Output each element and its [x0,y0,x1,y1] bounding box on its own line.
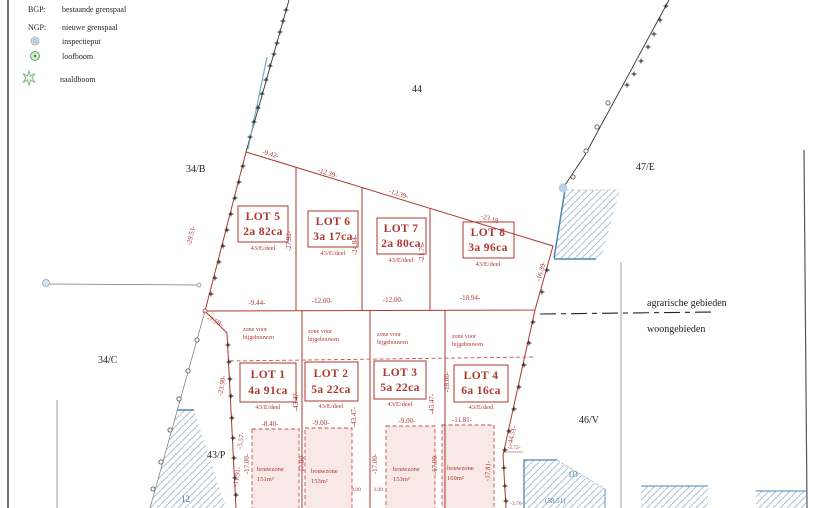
parcel-area-note: (58.51) [545,497,566,505]
zone-label: bijgebouwen [377,340,408,346]
dim-depth: -17.00- [371,453,379,474]
grenspaal-circle [197,283,201,287]
zone-label: bijgebouwen [243,335,274,341]
dim-mid-3: -18.94- [460,294,481,302]
bouwzone-label: bouwzone [311,468,338,475]
dim-bz-3: -11.81- [452,416,473,424]
cadastral-site-plan: BGP: bestaande grenspaal NGP: nieuwe gre… [0,0,836,508]
parcel-47e: 47/E [636,162,655,173]
lot4-area: 6a 16ca [461,385,501,397]
dim-gap-0: 3.00 [351,487,361,493]
lot7-area: 2a 80ca [381,238,421,250]
site-plan-svg: BGP: bestaande grenspaal NGP: nieuwe gre… [0,0,836,508]
bouwzone-area: 153m² [393,476,410,483]
legend-loofboom-label: loofboom [62,52,94,61]
parcel-44: 44 [412,84,422,95]
legend-inspectieput-label: inspectieput [62,37,101,46]
bouwzone-label: bouwzone [393,466,420,473]
lot4-name: LOT 4 [464,370,499,382]
inspectieput-symbol [43,280,50,287]
lot6-ref: 43/E/deel [321,250,346,257]
bouwzone-area: 153m² [311,478,328,485]
loofboom-icon-center [34,55,36,57]
bouwzone-area: 151m² [257,476,274,483]
lot2-area: 5a 22ca [311,384,351,396]
lot5-name: LOT 5 [246,211,281,223]
dim-bz-2: -9.00- [399,417,417,425]
parcel-1d: 1D [568,470,578,479]
lot3-name: LOT 3 [383,367,418,379]
dim-depth: -17.00- [431,453,439,474]
dim-lower-div-2: -43.47- [428,393,436,414]
dim-gap-1: 3.00 [373,487,383,493]
dim-lower-div-1: -43.47- [350,406,358,427]
dim-depth: -17.00- [298,453,306,474]
bouwzone-label: bouwzone [447,465,474,472]
lot4-ref: 43/E/deel [469,404,494,411]
dim-depth: -17.00- [243,453,251,474]
hatch-area-corner [756,491,806,508]
zoning-above-label: agrarische gebieden [647,298,727,309]
bouwzone-label: bouwzone [257,466,284,473]
legend-bgp-label: bestaande grenspaal [62,5,127,14]
parcel-43p: 43/P [207,450,226,461]
parcel-34b: 34/B [186,164,206,175]
lot6-name: LOT 6 [316,216,351,228]
zoning-below-label: woongebieden [647,324,705,335]
lot1-ref: 43/E/deel [256,404,281,411]
zone-label: zone voor [243,327,267,333]
lot8-name: LOT 8 [471,227,506,239]
legend-ngp-label: nieuwe grenspaal [62,23,119,32]
hatch-area-southeast [641,486,708,508]
bouwzone-area: 169m² [447,475,464,482]
lot3-area: 5a 22ca [380,382,420,394]
dim-depth-right: -17.81- [483,460,492,481]
dim-bz-1: -9.00- [313,419,331,427]
dim-upper-div-2: -21.76- [418,241,426,262]
dim-mid-2: -12.00- [383,296,404,304]
dim-bz-0: -8.40- [262,420,280,428]
zone-label: zone voor [377,332,401,338]
lot3-ref: 43/E/deel [388,401,413,408]
lot8-ref: 43/E/deel [476,261,501,268]
inspectieput-symbol [559,184,568,193]
lot7-name: LOT 7 [384,223,419,235]
zone-label: zone voor [452,334,476,340]
dim-small-right-0: -3.72- [507,445,520,451]
legend-ngp-key: NGP: [28,23,46,32]
dim-lower-div-3: -18.00- [443,371,451,392]
zone-label: zone voor [308,329,332,335]
lot6-area: 3a 17ca [313,231,353,243]
lot5-ref: 43/E/deel [251,245,276,252]
zone-label: bijgebouwen [452,342,483,348]
dim-mid-0: -9.44- [249,299,267,307]
lot2-name: LOT 2 [314,368,349,380]
lot8-area: 3a 96ca [468,242,508,254]
dim-lower-div-0: -43.47- [292,390,300,411]
lot1-area: 4a 91ca [248,385,288,397]
parcel-12: 12 [181,494,190,504]
lot2-ref: 43/E/deel [319,403,344,410]
zone-label: bijgebouwen [308,337,339,343]
lot5-area: 2a 82ca [243,226,283,238]
parcel-34c: 34/C [98,355,118,366]
lot7-ref: 43/E/deel [389,257,414,264]
inspectieput-icon [31,37,39,45]
parcel-46v: 46/V [579,415,600,426]
dim-mid-1: -12.00- [312,297,333,305]
legend-naaldboom-label: naaldboom [60,75,96,84]
dim-upper-div-0: -27.92- [285,230,293,251]
dim-small-right-1: -3.76- [510,501,523,507]
dim-upper-div-1: -24.84- [351,234,359,255]
legend-bgp-key: BGP: [28,5,46,14]
lot1-name: LOT 1 [251,369,286,381]
